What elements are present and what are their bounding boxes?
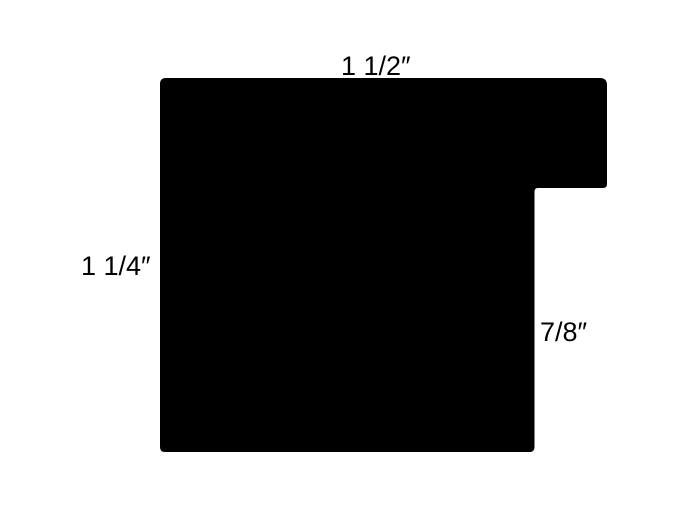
svg-text:1 1/4″: 1 1/4″	[81, 251, 151, 281]
svg-text:7/8″: 7/8″	[540, 317, 588, 347]
svg-text:1 1/2″: 1 1/2″	[341, 51, 411, 81]
